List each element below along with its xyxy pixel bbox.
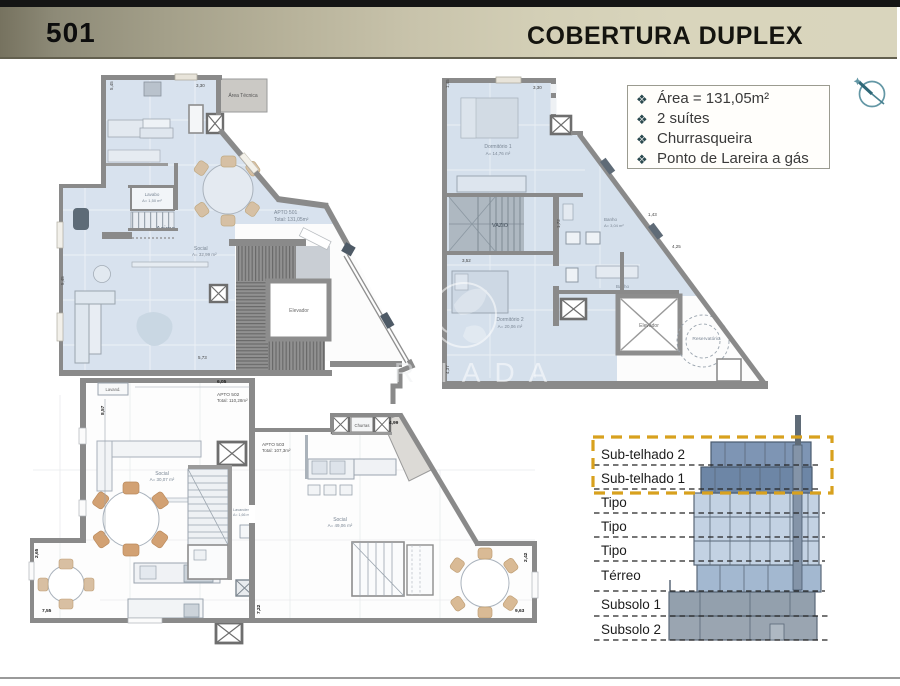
svg-text:1,43: 1,43 [648,212,657,217]
svg-text:APTO 501: APTO 501 [274,210,297,216]
svg-text:Sub-telhado 2: Sub-telhado 2 [601,447,685,462]
svg-text:Dormitório 2: Dormitório 2 [496,317,523,323]
svg-text:Total: 107,3m²: Total: 107,3m² [262,448,291,453]
svg-text:4,25: 4,25 [672,244,681,249]
svg-text:Churras: Churras [355,423,370,428]
svg-text:A= 1,66 m²: A= 1,66 m² [233,513,251,517]
svg-text:Dormitório 1: Dormitório 1 [484,144,511,150]
svg-text:2,65: 2,65 [34,548,40,558]
svg-text:A= 49,06 m²: A= 49,06 m² [328,523,353,528]
svg-text:Total: 131,05m²: Total: 131,05m² [274,217,309,223]
svg-text:VAZIO: VAZIO [492,223,509,229]
svg-text:5,45: 5,45 [109,81,114,90]
svg-text:Elevador: Elevador [639,323,659,329]
svg-text:Reservatório: Reservatório [692,336,720,342]
svg-text:3,52: 3,52 [462,258,471,263]
svg-text:A= 14,76 m²: A= 14,76 m² [486,151,511,156]
svg-text:5,45: 5,45 [60,276,65,285]
svg-text:1,72: 1,72 [556,219,561,228]
svg-text:4,99: 4,99 [389,420,399,426]
svg-text:6,05: 6,05 [217,379,227,385]
svg-text:2,42: 2,42 [523,552,529,562]
svg-text:A= 32,99 m²: A= 32,99 m² [192,252,217,257]
svg-text:3,30: 3,30 [533,85,542,90]
svg-text:Sub-telhado 1: Sub-telhado 1 [601,471,685,486]
svg-text:9,63: 9,63 [515,608,525,614]
svg-text:Área Técnica: Área Técnica [228,92,258,99]
svg-text:A= 20,06 m²: A= 20,06 m² [498,324,523,329]
svg-text:Subsolo 1: Subsolo 1 [601,597,661,612]
svg-text:1,45: 1,45 [445,79,450,88]
svg-text:Total: 110,28m²: Total: 110,28m² [217,398,248,403]
svg-text:7,55: 7,55 [42,608,52,614]
svg-text:Elevador: Elevador [289,308,309,314]
svg-text:R: R [394,357,428,388]
svg-text:Térreo: Térreo [601,568,641,583]
svg-text:Subsolo 2: Subsolo 2 [601,622,661,637]
svg-text:Tipo: Tipo [601,519,627,534]
svg-text:A= 30,07 m²: A= 30,07 m² [150,477,175,482]
svg-text:Tipo: Tipo [601,495,627,510]
svg-text:Tipo: Tipo [601,543,627,558]
svg-text:Banho: Banho [604,217,618,222]
svg-text:7,22: 7,22 [256,604,262,614]
svg-text:Lavabo: Lavabo [145,192,160,197]
svg-text:IADA: IADA [440,357,561,388]
svg-text:A= 3,04 m²: A= 3,04 m² [604,223,624,228]
svg-text:A= 1,50 m²: A= 1,50 m² [142,198,162,203]
svg-text:3,30: 3,30 [196,83,205,88]
svg-text:Lavand.: Lavand. [106,387,121,392]
svg-text:5,73: 5,73 [198,355,207,360]
